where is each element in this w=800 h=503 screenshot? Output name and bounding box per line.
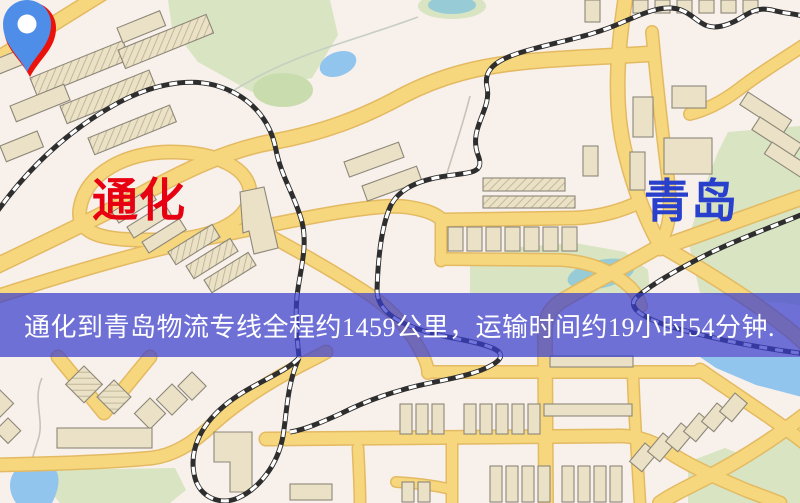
map-image: 通化 青岛 通化到青岛物流专线全程约1459公里，运输时间约19小时54分钟. [0,0,800,503]
origin-label: 通化 [92,178,186,224]
map-svg [0,0,800,503]
destination-label: 青岛 [644,179,738,225]
destination-pin blue-map-pin-icon [0,0,54,74]
route-banner: 通化到青岛物流专线全程约1459公里，运输时间约19小时54分钟. [0,293,800,357]
route-banner-text: 通化到青岛物流专线全程约1459公里，运输时间约19小时54分钟. [0,307,775,344]
